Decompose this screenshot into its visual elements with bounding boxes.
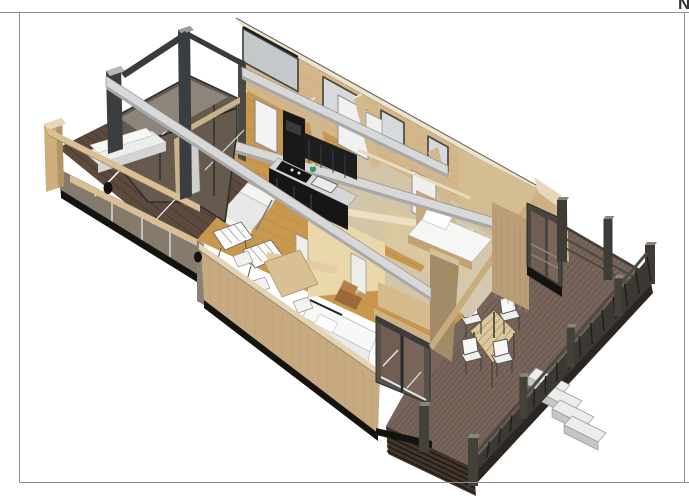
svg-text:N: N [678, 0, 689, 13]
